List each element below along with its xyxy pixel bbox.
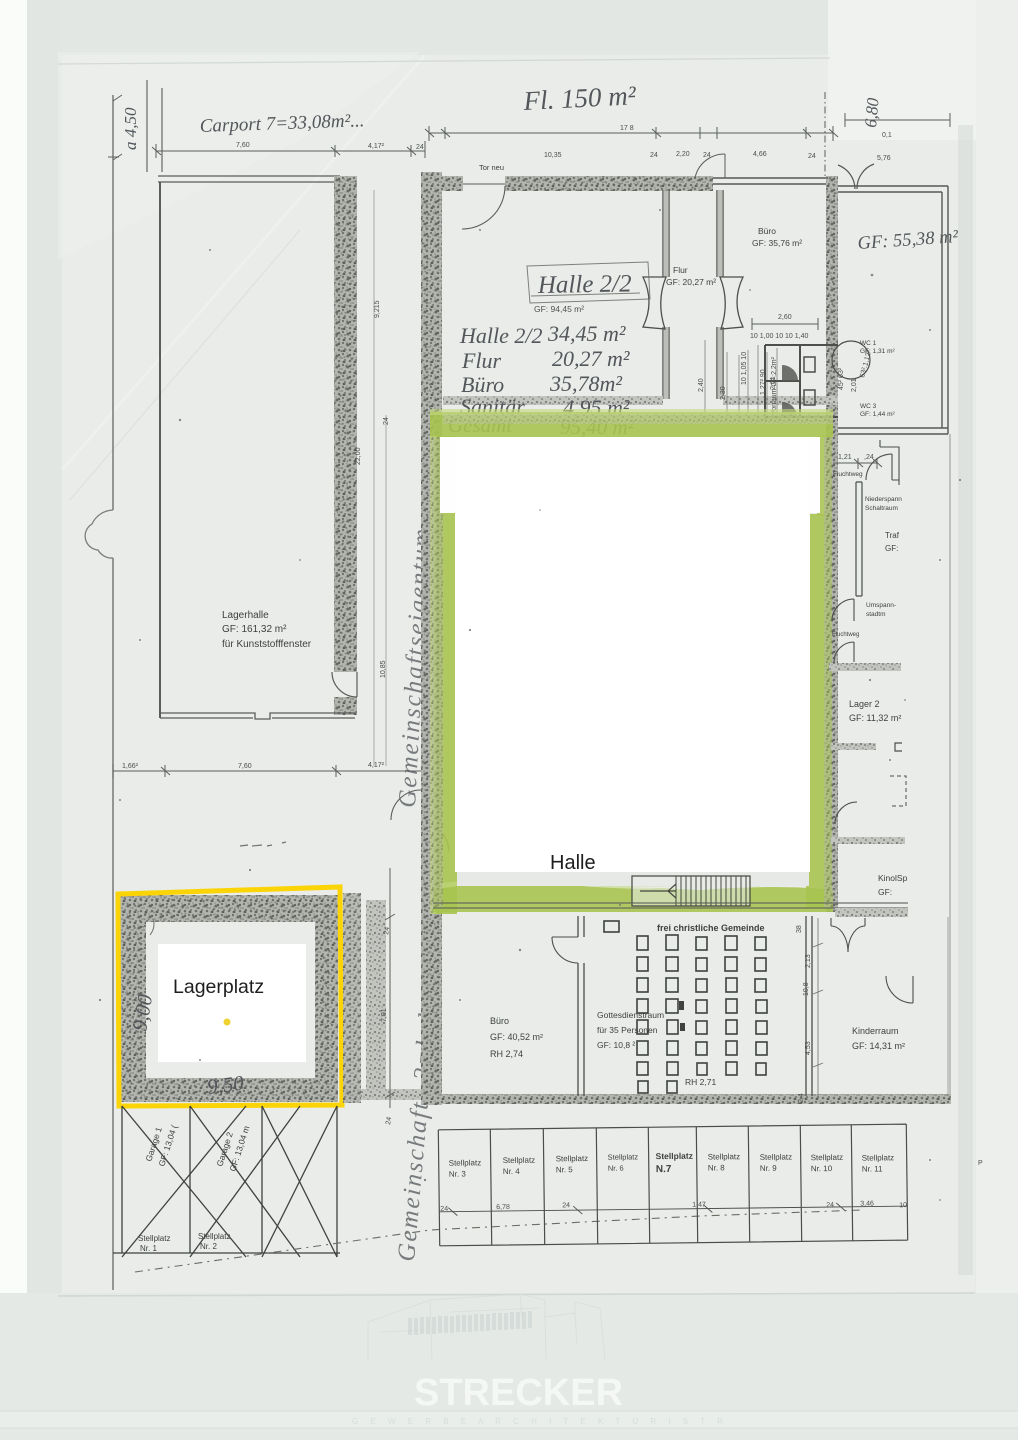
svg-text:7,60: 7,60 bbox=[236, 142, 250, 149]
svg-text:24: 24 bbox=[650, 152, 658, 159]
svg-text:N.7: N.7 bbox=[656, 1164, 672, 1175]
svg-text:Stellplatz: Stellplatz bbox=[760, 1153, 793, 1162]
svg-text:für Kunststofffenster: für Kunststofffenster bbox=[222, 639, 312, 650]
svg-text:Niederspann: Niederspann bbox=[865, 496, 902, 503]
svg-text:Halle: Halle bbox=[550, 852, 596, 874]
svg-text:1,21: 1,21 bbox=[838, 454, 852, 461]
svg-text:WC 1: WC 1 bbox=[860, 340, 877, 347]
svg-text:,24: ,24 bbox=[864, 454, 874, 461]
svg-text:24: 24 bbox=[562, 1202, 570, 1209]
svg-text:WC 3: WC 3 bbox=[860, 403, 877, 410]
svg-text:17 8: 17 8 bbox=[620, 125, 634, 132]
svg-text:24: 24 bbox=[440, 1206, 448, 1213]
svg-text:24: 24 bbox=[383, 417, 390, 425]
svg-text:Stellplatz: Stellplatz bbox=[198, 1232, 230, 1241]
svg-text:RH 2,71: RH 2,71 bbox=[685, 1077, 716, 1087]
svg-text:Nr. 3: Nr. 3 bbox=[449, 1169, 467, 1178]
svg-text:GF: 20,27 m²: GF: 20,27 m² bbox=[666, 277, 716, 287]
svg-text:Stellplatz: Stellplatz bbox=[656, 1151, 693, 1161]
svg-text:10,8: 10,8 bbox=[803, 982, 810, 996]
svg-text:Stellplatz: Stellplatz bbox=[503, 1156, 536, 1165]
svg-text:1,47: 1,47 bbox=[692, 1202, 706, 1209]
svg-text:GF: 1,44 m²: GF: 1,44 m² bbox=[860, 411, 896, 418]
svg-text:45² 63²: 45² 63² bbox=[838, 367, 845, 390]
svg-text:24: 24 bbox=[416, 144, 424, 151]
svg-text:7,01: 7,01 bbox=[381, 1008, 388, 1022]
svg-text:Fluchtweg: Fluchtweg bbox=[832, 632, 859, 638]
svg-text:Lagerplatz: Lagerplatz bbox=[173, 976, 264, 998]
svg-text:Flur: Flur bbox=[673, 265, 688, 275]
svg-text:Büro: Büro bbox=[758, 226, 776, 236]
svg-text:2,60: 2,60 bbox=[778, 314, 792, 321]
svg-text:GF: 10,8 ²: GF: 10,8 ² bbox=[597, 1040, 635, 1050]
svg-text:GF: 161,32 m²: GF: 161,32 m² bbox=[222, 624, 287, 635]
svg-text:10,35: 10,35 bbox=[544, 152, 562, 159]
svg-text:22,00: 22,00 bbox=[355, 447, 362, 465]
svg-text:24: 24 bbox=[383, 926, 391, 935]
svg-text:Umspann-: Umspann- bbox=[866, 602, 896, 609]
svg-text:38: 38 bbox=[796, 925, 803, 933]
svg-text:Stellplatz: Stellplatz bbox=[138, 1234, 170, 1243]
svg-text:2,4: 2,4 bbox=[798, 1093, 805, 1103]
svg-text:GF: 35,76 m²: GF: 35,76 m² bbox=[752, 238, 802, 248]
svg-text:2,13: 2,13 bbox=[805, 954, 812, 968]
svg-text:a 4,50: a 4,50 bbox=[121, 107, 140, 150]
svg-text:Kinderraum: Kinderraum bbox=[852, 1026, 899, 1036]
svg-text:STRECKER: STRECKER bbox=[414, 1372, 623, 1414]
svg-text:Gottesdienstraum: Gottesdienstraum bbox=[597, 1010, 664, 1020]
svg-text:24: 24 bbox=[385, 1116, 393, 1125]
svg-text:9,50: 9,50 bbox=[206, 1071, 246, 1099]
svg-text:GF:: GF: bbox=[885, 544, 898, 553]
svg-text:2,40: 2,40 bbox=[698, 378, 705, 392]
svg-text:Traf: Traf bbox=[885, 531, 900, 540]
svg-text:Stellplatz: Stellplatz bbox=[708, 1152, 741, 1161]
svg-text:GF: 94,45 m²: GF: 94,45 m² bbox=[534, 304, 584, 314]
svg-text:Büro: Büro bbox=[490, 1016, 509, 1026]
svg-text:für 35 Personen: für 35 Personen bbox=[597, 1025, 658, 1035]
svg-text:0,1: 0,1 bbox=[882, 132, 892, 139]
svg-text:GF:: GF: bbox=[878, 887, 892, 897]
svg-text:3,46: 3,46 bbox=[860, 1201, 874, 1208]
svg-text:Stellplatz: Stellplatz bbox=[556, 1154, 589, 1163]
svg-text:Stellplatz: Stellplatz bbox=[811, 1153, 844, 1162]
svg-text:Schaltraum: Schaltraum bbox=[865, 505, 898, 512]
svg-text:Nr. 6: Nr. 6 bbox=[608, 1164, 624, 1173]
svg-text:24: 24 bbox=[826, 1202, 834, 1209]
svg-text:Vorraum GF:2,2m²: Vorraum GF:2,2m² bbox=[771, 356, 778, 415]
svg-text:Fluchtweg: Fluchtweg bbox=[833, 471, 863, 478]
svg-text:35,78m²: 35,78m² bbox=[549, 371, 622, 396]
svg-text:P: P bbox=[978, 1160, 983, 1167]
svg-text:4,17²: 4,17² bbox=[368, 143, 385, 150]
svg-text:Halle 2/2: Halle 2/2 bbox=[459, 323, 543, 348]
svg-text:Nr. 10: Nr. 10 bbox=[811, 1164, 833, 1173]
svg-text:GF: 40,52 m²: GF: 40,52 m² bbox=[490, 1032, 543, 1042]
svg-text:Nr. 11: Nr. 11 bbox=[862, 1164, 883, 1173]
svg-text:4,66: 4,66 bbox=[753, 151, 767, 158]
svg-text:2,01: 2,01 bbox=[851, 378, 858, 392]
svg-text:Fl. 150 m²: Fl. 150 m² bbox=[522, 80, 638, 116]
svg-text:6,80: 6,80 bbox=[861, 97, 883, 129]
svg-text:Stellplatz: Stellplatz bbox=[608, 1152, 639, 1161]
svg-text:Nr. 4: Nr. 4 bbox=[503, 1167, 521, 1176]
svg-text:1,66²: 1,66² bbox=[122, 763, 139, 770]
svg-text:24: 24 bbox=[808, 153, 816, 160]
svg-text:7,60: 7,60 bbox=[238, 763, 252, 770]
svg-text:G E W E R B E A R C H I T E K: G E W E R B E A R C H I T E K T U R I S … bbox=[352, 1417, 728, 1426]
svg-text:Nr. 2: Nr. 2 bbox=[200, 1242, 217, 1251]
svg-text:Nr. 1: Nr. 1 bbox=[140, 1244, 157, 1253]
svg-text:10 1,05 10: 10 1,05 10 bbox=[741, 352, 748, 385]
svg-text:9,215: 9,215 bbox=[374, 300, 381, 318]
svg-text:GF: 11,32 m²: GF: 11,32 m² bbox=[849, 713, 901, 723]
svg-text:4,17²: 4,17² bbox=[368, 762, 385, 769]
svg-text:Flur: Flur bbox=[461, 348, 502, 373]
svg-text:Nr. 9: Nr. 9 bbox=[760, 1164, 778, 1173]
svg-text:Nr. 5: Nr. 5 bbox=[556, 1165, 574, 1174]
svg-text:4,53: 4,53 bbox=[805, 1041, 812, 1055]
svg-text:Lager 2: Lager 2 bbox=[849, 699, 880, 709]
svg-text:10 1,00 10 10 1,40: 10 1,00 10 10 1,40 bbox=[750, 333, 808, 340]
svg-text:5,76: 5,76 bbox=[877, 155, 891, 162]
svg-text:stadtm: stadtm bbox=[866, 611, 886, 618]
svg-text:KinolSp: KinolSp bbox=[878, 873, 908, 883]
svg-text:Halle 2/2: Halle 2/2 bbox=[537, 270, 632, 299]
svg-text:Tor neu: Tor neu bbox=[479, 163, 504, 172]
svg-text:Lagerhalle: Lagerhalle bbox=[222, 610, 269, 621]
svg-text:Stellplatz: Stellplatz bbox=[862, 1153, 895, 1162]
svg-text:Nr. 8: Nr. 8 bbox=[708, 1163, 726, 1172]
svg-text:RH 2,74: RH 2,74 bbox=[490, 1049, 523, 1059]
svg-text:Stellplatz: Stellplatz bbox=[449, 1158, 482, 1167]
svg-text:34,45 m²: 34,45 m² bbox=[547, 321, 626, 346]
svg-text:2,30: 2,30 bbox=[720, 386, 727, 400]
svg-text:6,78: 6,78 bbox=[496, 1204, 510, 1211]
svg-text:10: 10 bbox=[899, 1202, 907, 1209]
svg-text:20,27 m²: 20,27 m² bbox=[552, 346, 630, 371]
svg-text:GF: 14,31 m²: GF: 14,31 m² bbox=[852, 1041, 905, 1051]
svg-text:2,20: 2,20 bbox=[676, 151, 690, 158]
svg-text:frei christliche Gemeinde: frei christliche Gemeinde bbox=[657, 923, 765, 933]
